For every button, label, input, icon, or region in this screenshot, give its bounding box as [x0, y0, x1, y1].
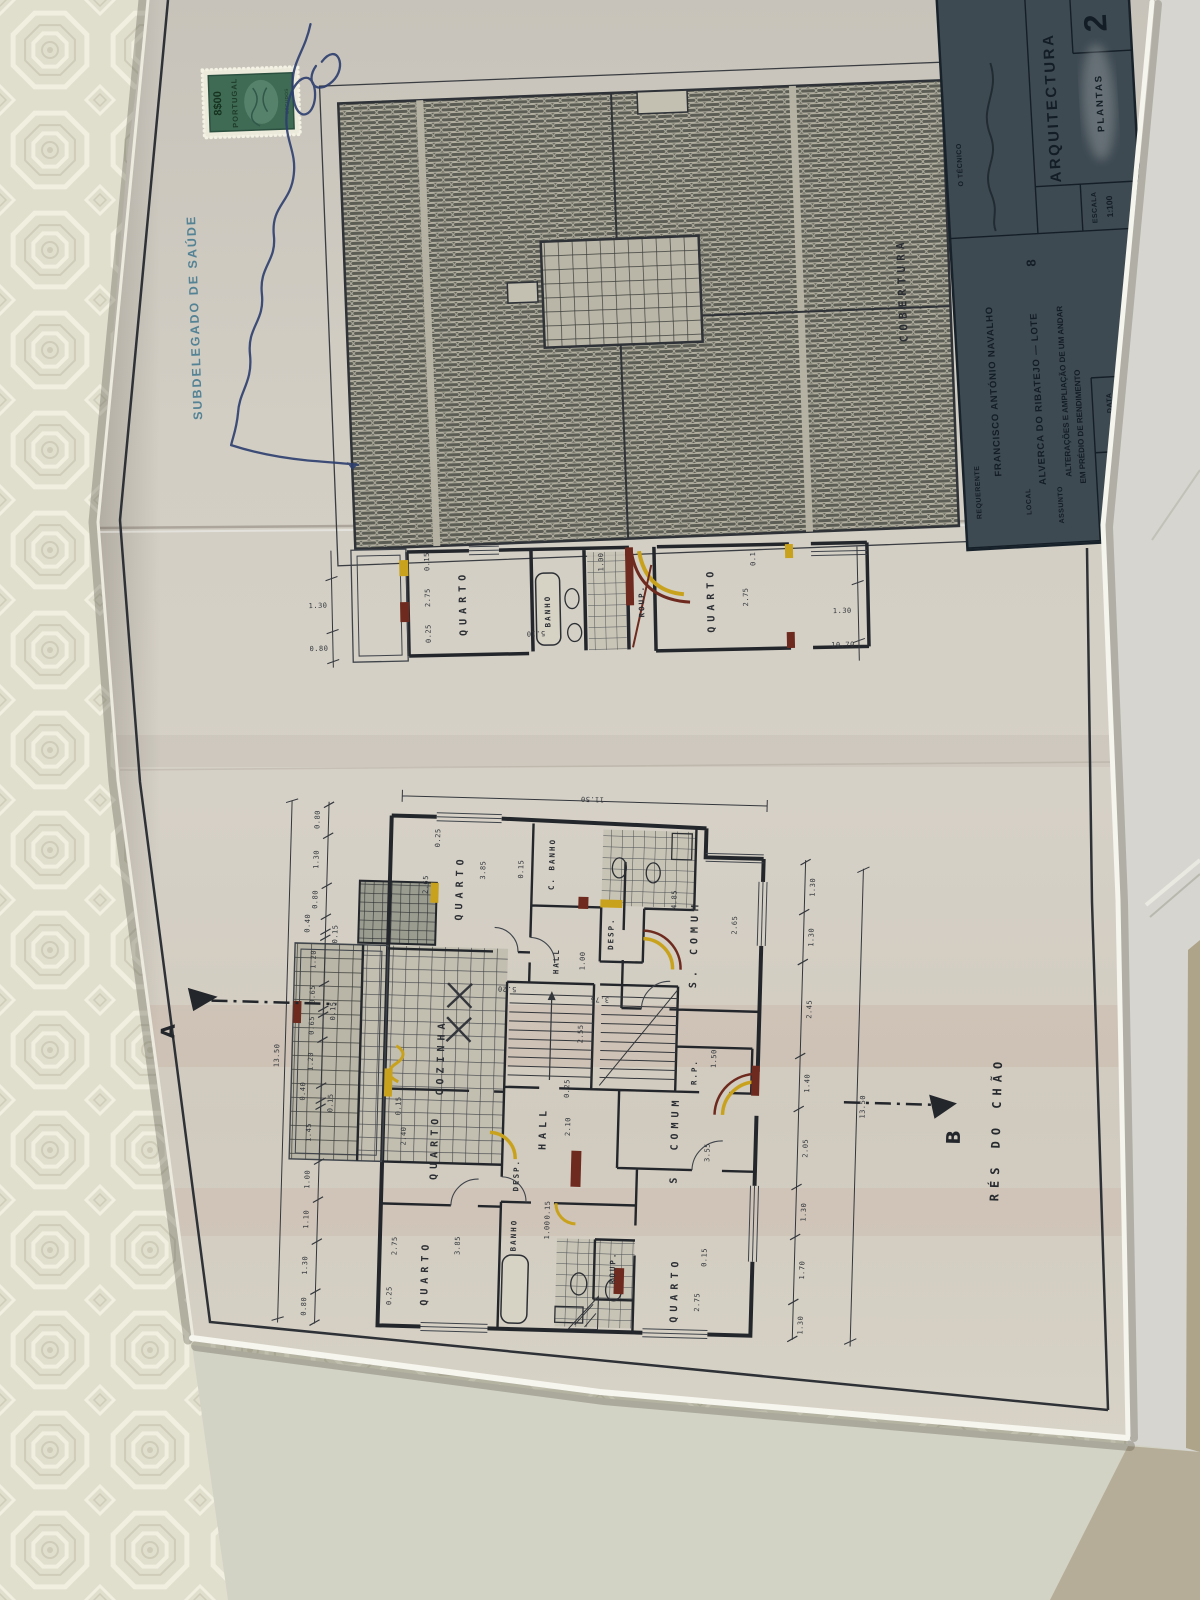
svg-text:3.55: 3.55: [703, 1143, 712, 1162]
svg-text:0.80: 0.80: [313, 810, 322, 829]
svg-text:2.40: 2.40: [400, 1126, 409, 1145]
svg-text:0.25: 0.25: [434, 828, 443, 847]
svg-text:1.00: 1.00: [543, 1220, 552, 1239]
room-label: HALL: [537, 1106, 549, 1150]
dimension: 1.30: [833, 607, 852, 615]
lote-number: 8: [1023, 259, 1038, 267]
room-label: ROUP.: [637, 585, 647, 618]
tax-stamp-country: PORTUGAL: [229, 78, 240, 128]
svg-text:0.15: 0.15: [544, 1201, 553, 1220]
svg-text:2.45: 2.45: [805, 1000, 814, 1019]
svg-text:1.00: 1.00: [578, 951, 587, 970]
svg-text:0.80: 0.80: [311, 890, 320, 909]
svg-text:1.50: 1.50: [710, 1049, 719, 1068]
svg-text:1.30: 1.30: [796, 1316, 805, 1335]
svg-text:1.30: 1.30: [312, 850, 321, 869]
room-label: QUARTO: [457, 570, 469, 636]
svg-text:0.40: 0.40: [299, 1082, 308, 1101]
svg-text:0.15: 0.15: [700, 1248, 709, 1267]
dimension: 0.15: [423, 552, 431, 571]
dimension: 2.75: [424, 588, 432, 607]
local-label: LOCAL: [1025, 488, 1033, 515]
svg-text:0.65: 0.65: [308, 985, 317, 1004]
table-edge: [1186, 940, 1200, 1452]
room-label: HALL: [551, 948, 561, 974]
section-marker-a: A: [157, 1023, 179, 1039]
svg-text:1.20: 1.20: [309, 950, 318, 969]
dimension: 10.70: [831, 641, 855, 649]
svg-text:0.65: 0.65: [308, 1016, 317, 1035]
dimension-total: 13.50: [273, 1044, 282, 1068]
room-label: COZINHA: [435, 1018, 448, 1095]
svg-text:0.80: 0.80: [300, 1297, 309, 1316]
dimension: 5.10: [526, 629, 545, 637]
svg-text:2.75: 2.75: [693, 1293, 702, 1312]
svg-text:2.05: 2.05: [801, 1139, 810, 1158]
roof-terrace-grid: [541, 236, 703, 348]
dimension: 0.1: [749, 552, 757, 566]
svg-text:0.40: 0.40: [303, 914, 312, 933]
photo-of-architectural-drawing: COBERTURA QUARTO B: [0, 0, 1200, 1600]
svg-text:1.45: 1.45: [305, 1123, 314, 1142]
sheet-number: 2: [1077, 13, 1114, 33]
svg-text:2.55: 2.55: [576, 1024, 585, 1043]
svg-text:0.25: 0.25: [563, 1079, 572, 1098]
svg-text:1.30: 1.30: [301, 1256, 310, 1275]
svg-text:2.75: 2.75: [390, 1236, 399, 1255]
room-label: DESP.: [606, 917, 616, 950]
roof-plan: COBERTURA: [320, 62, 974, 566]
svg-text:3.75: 3.75: [590, 995, 609, 1004]
svg-text:5.20: 5.20: [497, 985, 516, 994]
dimension-total-width: 11.50: [580, 795, 604, 804]
chimney: [637, 90, 688, 114]
room-label: ROUP.: [608, 1251, 618, 1284]
svg-text:0.15: 0.15: [326, 1093, 335, 1112]
dimension-total: 13.50: [858, 1095, 867, 1119]
svg-text:0.15: 0.15: [517, 860, 526, 879]
room-label: QUARTO: [454, 854, 467, 920]
section-marker-b: B: [943, 1130, 965, 1145]
svg-text:3.85: 3.85: [453, 1236, 462, 1255]
svg-text:3.85: 3.85: [479, 861, 488, 880]
bath-tiles-1: [601, 829, 696, 908]
svg-text:1.10: 1.10: [302, 1210, 311, 1229]
room-label: DESP.: [511, 1159, 521, 1192]
room-label: QUARTO: [705, 566, 717, 632]
room-label: QUARTO: [429, 1114, 442, 1180]
chimney: [507, 282, 538, 303]
svg-text:0.25: 0.25: [385, 1286, 394, 1305]
tax-stamp-value: 8$00: [212, 91, 225, 116]
dimension: 1.30: [309, 602, 328, 610]
svg-text:1.00: 1.00: [303, 1170, 312, 1189]
svg-text:1.40: 1.40: [803, 1074, 812, 1093]
room-label: BANHO: [543, 595, 553, 628]
room-label: QUARTO: [669, 1256, 682, 1322]
dimension: 0.25: [424, 624, 432, 643]
svg-text:1.70: 1.70: [798, 1261, 807, 1280]
room-label: BANHO: [509, 1219, 519, 1252]
svg-text:1.30: 1.30: [800, 1203, 809, 1222]
dimension: 0.80: [309, 645, 328, 653]
svg-text:2.65: 2.65: [731, 916, 740, 935]
bath-tiles: [587, 551, 627, 650]
dimension: 1.00: [597, 552, 605, 571]
svg-text:1.30: 1.30: [809, 878, 818, 897]
svg-text:2.10: 2.10: [564, 1117, 573, 1136]
dimension: 2.75: [742, 587, 750, 606]
svg-text:0.15: 0.15: [331, 924, 340, 943]
room-label: R.P.: [689, 1059, 699, 1085]
svg-text:1.30: 1.30: [807, 928, 816, 947]
scale-value: 1:100: [1104, 195, 1115, 218]
room-label: C. BANHO: [547, 838, 557, 890]
svg-text:4.85: 4.85: [670, 890, 679, 909]
room-label: QUARTO: [419, 1239, 432, 1305]
svg-text:1.20: 1.20: [307, 1052, 316, 1071]
svg-text:2.65: 2.65: [422, 875, 431, 894]
svg-text:0.15: 0.15: [394, 1096, 403, 1115]
